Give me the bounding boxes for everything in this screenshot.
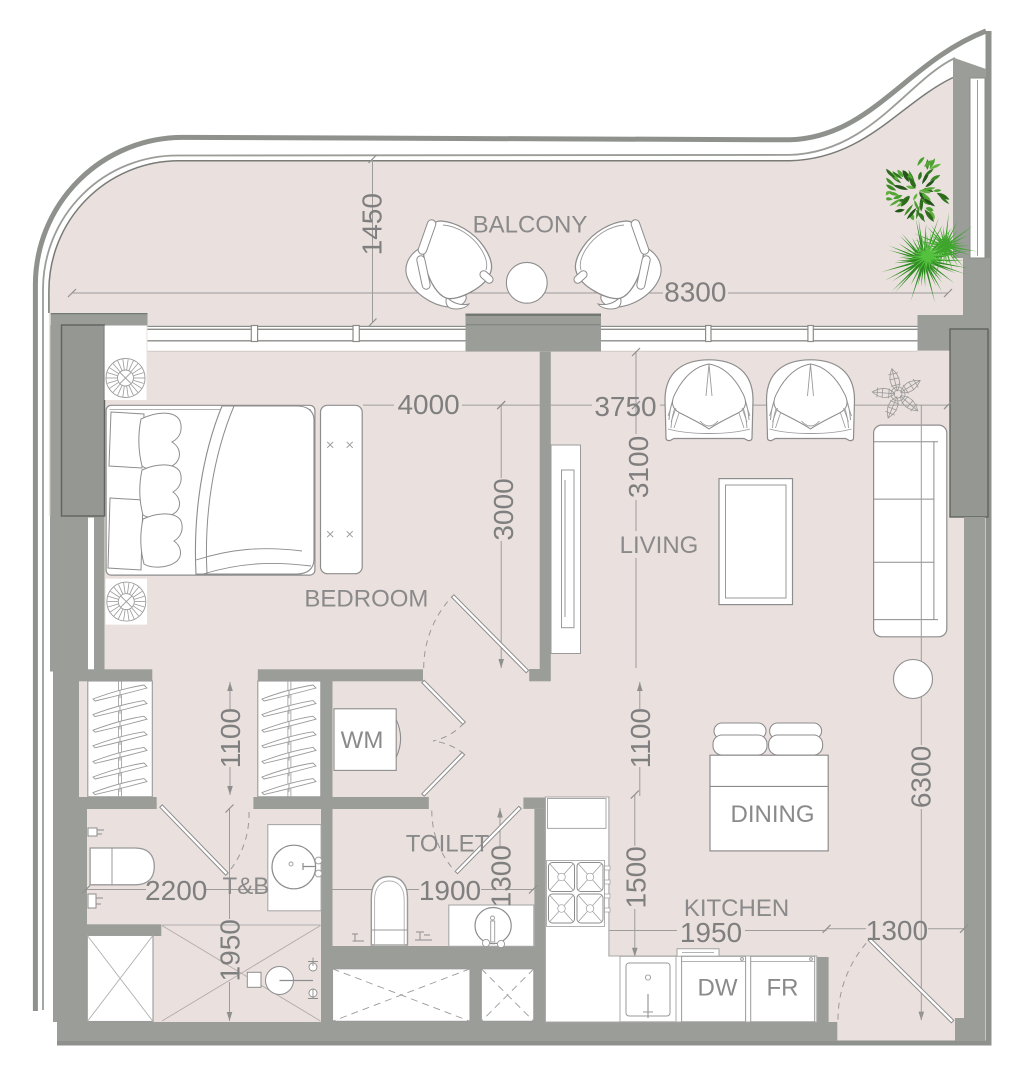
- svg-text:LIVING: LIVING: [620, 532, 699, 559]
- svg-text:3000: 3000: [488, 478, 519, 540]
- svg-text:1100: 1100: [625, 708, 656, 768]
- svg-text:1950: 1950: [215, 919, 246, 981]
- svg-text:TOILET: TOILET: [406, 830, 490, 857]
- svg-text:1500: 1500: [621, 846, 652, 908]
- svg-text:2200: 2200: [145, 875, 207, 906]
- svg-text:DINING: DINING: [731, 801, 815, 828]
- svg-text:T&B: T&B: [223, 873, 270, 900]
- svg-text:6300: 6300: [906, 746, 937, 808]
- svg-text:1950: 1950: [680, 917, 742, 948]
- svg-text:WM: WM: [341, 727, 384, 754]
- svg-text:1100: 1100: [215, 708, 246, 768]
- svg-text:4000: 4000: [397, 389, 459, 420]
- svg-text:BALCONY: BALCONY: [473, 211, 588, 238]
- svg-text:1300: 1300: [486, 845, 517, 907]
- svg-text:1300: 1300: [866, 915, 928, 946]
- svg-text:1900: 1900: [419, 875, 481, 906]
- svg-text:8300: 8300: [664, 277, 726, 308]
- svg-text:DW: DW: [698, 975, 738, 1002]
- svg-text:3100: 3100: [623, 436, 654, 498]
- svg-text:FR: FR: [767, 975, 799, 1002]
- svg-text:1450: 1450: [357, 193, 388, 255]
- svg-text:3750: 3750: [594, 391, 656, 422]
- svg-text:BEDROOM: BEDROOM: [304, 585, 428, 612]
